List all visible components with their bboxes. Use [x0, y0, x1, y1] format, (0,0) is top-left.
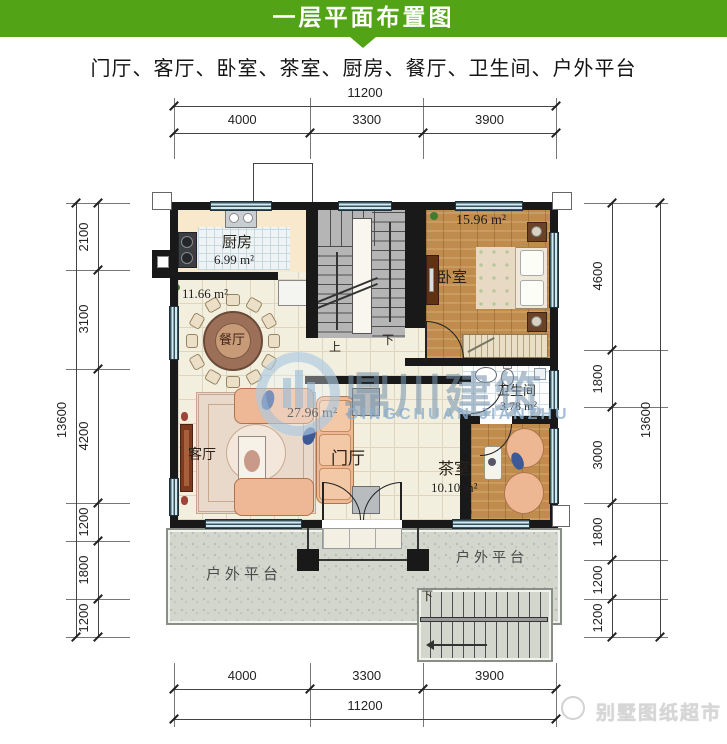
dim-label: 3900 — [459, 112, 519, 128]
stair-landing — [352, 218, 372, 334]
window-tearoom-right — [549, 428, 559, 504]
dining-area-label: 11.66 m² — [182, 287, 228, 300]
dim-extension — [423, 98, 424, 159]
wall-bath-bottom-right — [512, 416, 558, 424]
dining-chair — [268, 334, 280, 348]
bedroom-tv — [429, 268, 434, 292]
dim-label: 4200 — [76, 406, 92, 466]
bathroom-sink — [475, 367, 497, 383]
dim-label: 1200 — [76, 588, 92, 648]
stair-down-arrow-line — [389, 222, 391, 322]
flue-projection — [253, 163, 313, 203]
bathroom-area-label: 3.78 m² — [500, 400, 537, 412]
plant-red-bottom — [181, 496, 188, 505]
dim-label: 4000 — [212, 668, 272, 684]
tearoom-label: 茶室 — [438, 461, 470, 477]
bed-blanket — [476, 247, 516, 309]
entrance-steps — [322, 528, 402, 549]
porch-column-line-left — [307, 528, 309, 549]
dim-line — [660, 203, 661, 637]
window-tearoom-bottom — [452, 519, 530, 529]
outdoor-stair-arrowhead-icon — [426, 640, 434, 650]
page-title: 一层平面布置图 — [273, 5, 455, 31]
floor-plan-page: 一层平面布置图 门厅、客厅、卧室、茶室、厨房、餐厅、卫生间、户外平台 — [0, 0, 727, 744]
wall-bath-bottom-left — [460, 416, 480, 424]
wall-kitchen-bottom — [170, 272, 278, 280]
bathroom-label: 卫生间 — [497, 385, 536, 398]
coffee-table-decor — [244, 450, 260, 472]
pillow-top — [520, 250, 544, 276]
porch-column-left — [297, 549, 319, 571]
dim-label: 11200 — [335, 85, 395, 101]
dim-label: 1200 — [590, 588, 606, 648]
dim-label: 4600 — [590, 246, 606, 306]
dim-label: 13600 — [638, 390, 654, 450]
foyer-area-label: 27.96 m² — [287, 407, 337, 421]
living-label: 客厅 — [188, 448, 216, 462]
wall-bath-west-stub — [460, 376, 471, 382]
stair-down-label: 下 — [382, 334, 394, 346]
stove-burner-top — [181, 236, 193, 248]
window-dining-left — [169, 306, 179, 360]
nightstand-lamp-top — [531, 226, 542, 237]
dim-label: 3000 — [590, 425, 606, 485]
corner-tab-bottom-right — [552, 505, 570, 527]
wall-left-bump-vent — [157, 256, 169, 268]
stair-treads-left — [318, 246, 352, 338]
platform-right-label: 户外平台 — [456, 547, 528, 567]
dim-extension — [423, 663, 424, 727]
window-bathroom-right — [549, 370, 559, 410]
dim-line — [174, 719, 556, 720]
dim-line — [174, 133, 556, 134]
dim-label: 2100 — [76, 207, 92, 267]
dim-label: 4000 — [212, 112, 272, 128]
bedroom-area-label: 15.96 m² — [456, 214, 506, 228]
side-table-top — [352, 388, 380, 416]
dim-label: 13600 — [54, 390, 70, 450]
porch-column-right — [407, 549, 429, 571]
floor-drain — [534, 368, 546, 380]
footer-logo-icon — [561, 696, 585, 720]
corner-tab-top-left — [152, 192, 172, 210]
dining-chair — [186, 334, 198, 348]
dim-label: 3300 — [337, 668, 397, 684]
plant-red-top — [181, 412, 188, 421]
entrance-door-right-leaf — [400, 482, 402, 520]
dining-chair — [226, 376, 240, 388]
window-living-left — [169, 478, 179, 516]
kitchen-area-label: 6.99 m² — [214, 253, 254, 266]
armchair-bottom — [234, 478, 314, 516]
title-banner: 一层平面布置图 — [0, 0, 727, 37]
entrance-door-left-leaf — [322, 482, 324, 520]
dim-line — [174, 106, 556, 107]
dim-label: 3900 — [459, 668, 519, 684]
wall-bedroom-bottom — [405, 358, 558, 366]
window-bedroom-right — [549, 232, 559, 308]
platform-left-label: 户外平台 — [206, 563, 282, 584]
dim-extension — [310, 663, 311, 727]
dining-label: 餐厅 — [219, 334, 245, 347]
bedroom-door-leaf — [425, 321, 427, 361]
window-stair — [338, 201, 392, 211]
wall-foyer-corridor — [305, 376, 462, 384]
window-living-bottom — [205, 519, 302, 529]
outdoor-staircase — [417, 588, 553, 662]
outdoor-stair-arrow — [432, 644, 487, 646]
room-list-subtitle: 门厅、客厅、卧室、茶室、厨房、餐厅、卫生间、户外平台 — [0, 52, 727, 78]
footer-watermark-text: 别墅图纸超市 — [596, 698, 722, 725]
porch-tie-line — [319, 559, 407, 561]
kitchen-label: 厨房 — [222, 235, 252, 250]
window-bedroom-top — [455, 201, 523, 211]
stair-up-label: 上 — [329, 341, 341, 353]
wall-kitchen-stair — [306, 202, 318, 338]
stove-burner-bottom — [181, 252, 193, 264]
dim-line — [612, 203, 613, 637]
porch-column-line-right — [417, 528, 419, 549]
tearoom-area-label: 10.10 m² — [431, 481, 478, 494]
bedroom-label: 卧室 — [437, 270, 467, 285]
sink-basin-left — [229, 213, 239, 223]
dining-chair — [226, 294, 240, 306]
dim-label: 1800 — [590, 349, 606, 409]
foyer-label: 门厅 — [331, 451, 365, 468]
dim-label: 3300 — [337, 112, 397, 128]
dim-label: 11200 — [335, 698, 395, 714]
plant-green-bedroom — [430, 212, 438, 220]
outdoor-stair-down-label: 下 — [421, 590, 433, 602]
sink-basin-right — [243, 213, 253, 223]
fridge-cabinet — [278, 280, 308, 306]
corner-tab-top-right — [552, 192, 572, 210]
dim-line — [174, 689, 556, 690]
dim-label: 3100 — [76, 289, 92, 349]
window-kitchen — [210, 201, 272, 211]
stair-up-arrow-line — [336, 252, 338, 330]
teapot — [488, 458, 496, 466]
banner-pointer-icon — [350, 37, 376, 48]
pillow-bottom — [520, 280, 544, 306]
dim-extension — [584, 203, 668, 204]
wall-stair-bedroom — [405, 202, 426, 328]
outdoor-stair-rail — [420, 617, 548, 622]
nightstand-lamp-bottom — [531, 316, 542, 327]
